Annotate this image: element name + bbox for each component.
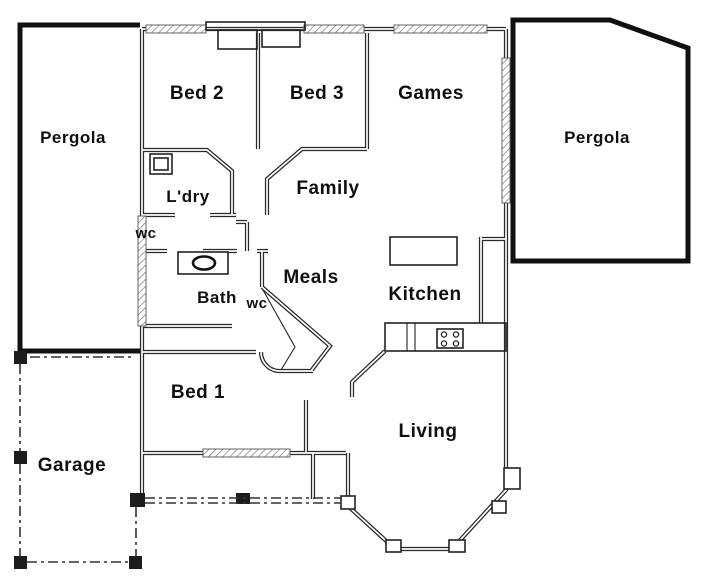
room-label-meals: Meals — [283, 267, 338, 288]
room-label-bath: Bath — [197, 288, 237, 307]
wall-core — [348, 490, 506, 549]
window-games — [394, 25, 487, 33]
wall-core — [261, 352, 313, 371]
carport-post — [14, 451, 27, 464]
carport-post — [129, 556, 142, 569]
window-bed2 — [146, 25, 206, 33]
built-in-robe-bed2 — [218, 30, 257, 49]
kitchen-island-bench — [390, 237, 457, 265]
laundry-trough-bowl — [154, 158, 168, 170]
pergola-left-outline — [20, 25, 140, 351]
room-label-living: Living — [399, 421, 458, 442]
room-label-laundry: L'dry — [166, 187, 209, 206]
bay-post — [449, 540, 465, 552]
window-games-side — [502, 58, 510, 203]
carport-post — [14, 556, 27, 569]
wall-pier — [504, 468, 520, 489]
wall-segment — [352, 351, 385, 397]
bay-post — [386, 540, 401, 552]
room-label-bed1: Bed 1 — [171, 382, 225, 403]
veranda-post — [130, 493, 145, 507]
room-label-bed3: Bed 3 — [290, 83, 344, 104]
window-bed1 — [203, 449, 290, 457]
cooktop-icon — [437, 329, 463, 348]
room-label-wc-lower: wc — [245, 295, 267, 312]
room-label-bed2: Bed 2 — [170, 83, 224, 104]
bay-post — [492, 501, 506, 513]
room-labels: Pergola Bed 2 Bed 3 Games Pergola L'dry … — [38, 83, 630, 476]
bay-post — [341, 496, 355, 509]
room-label-kitchen: Kitchen — [388, 284, 461, 305]
room-label-wc-upper: wc — [134, 225, 156, 242]
floor-plan-canvas: Pergola Bed 2 Bed 3 Games Pergola L'dry … — [0, 0, 714, 583]
carport-post — [14, 351, 27, 364]
room-label-garage: Garage — [38, 455, 106, 476]
room-label-pergola-right: Pergola — [564, 128, 630, 147]
wall-core — [262, 287, 330, 371]
room-label-family: Family — [296, 178, 359, 199]
wall-segment — [348, 490, 506, 549]
room-label-games: Games — [398, 83, 464, 104]
room-label-pergola-left: Pergola — [40, 128, 106, 147]
window-bed3 — [304, 25, 364, 33]
built-in-robe-bed3 — [262, 30, 300, 47]
floor-plan: Pergola Bed 2 Bed 3 Games Pergola L'dry … — [0, 0, 714, 583]
